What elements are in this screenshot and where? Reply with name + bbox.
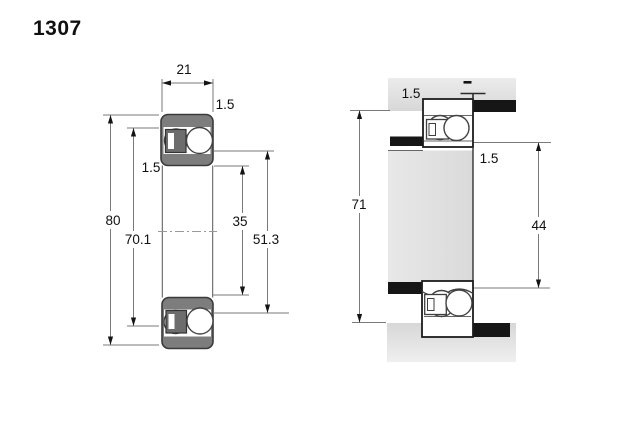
dim-raceway-diameter-70-1: 70.1 — [122, 128, 159, 326]
cage-notch — [429, 124, 436, 136]
arrowhead-down — [131, 318, 136, 327]
ball-right — [187, 128, 213, 154]
dim-outer-diameter-80: 80 — [100, 115, 159, 345]
arrowhead-up — [536, 143, 541, 152]
dim-bore-diameter-35: 35 — [213, 166, 252, 295]
housing-shoulder-bottom — [473, 323, 510, 337]
cage-notch — [169, 314, 175, 329]
housing-shoulder-top — [473, 100, 516, 112]
top-ring-section — [161, 115, 213, 166]
ball-right — [444, 116, 469, 141]
arrowhead-down — [108, 337, 113, 346]
arrowhead-down — [536, 280, 541, 289]
arrowhead-right — [204, 80, 213, 85]
arrowhead-up — [265, 151, 270, 160]
cage-notch — [428, 299, 435, 311]
dim-housing-abutment-71: 71 — [346, 111, 390, 323]
ball-right — [187, 308, 213, 334]
arrowhead-down — [240, 287, 245, 296]
raceway-diameter-label: 70.1 — [125, 232, 151, 247]
ball-right — [446, 290, 472, 316]
shaft-body — [388, 151, 473, 283]
shaft-shoulder-bottom — [388, 282, 422, 294]
bearing-top — [423, 99, 473, 147]
tick-dash — [464, 81, 472, 84]
left-view-bearing-cross-section: 21 1.5 1.5 80 70.1 — [100, 62, 289, 349]
arrowhead-up — [240, 166, 245, 175]
housing-abutment-label: 71 — [351, 197, 366, 212]
technical-drawing: 1307 — [0, 0, 640, 440]
drawing-canvas: 1307 — [0, 0, 640, 440]
shaft-fillet-label: 1.5 — [480, 151, 499, 166]
cage-notch — [168, 133, 174, 149]
arrowhead-up — [357, 111, 362, 120]
arrowhead-up — [108, 115, 113, 124]
outer-diameter-label: 80 — [105, 213, 120, 228]
housing-fillet-label: 1.5 — [402, 86, 421, 101]
dim-width-21: 21 — [162, 62, 213, 112]
width-dim-label: 21 — [176, 62, 191, 77]
shaft-abutment-label: 44 — [531, 218, 547, 233]
shaft-shoulder-top — [390, 137, 423, 147]
shoulder-diameter-label: 51.3 — [253, 232, 279, 247]
arrowhead-up — [131, 128, 136, 137]
inner-chamfer-label: 1.5 — [142, 160, 161, 175]
arrowhead-down — [265, 305, 270, 314]
dim-shoulder-diameter-51-3: 51.3 — [213, 151, 289, 313]
part-number: 1307 — [33, 17, 82, 40]
arrowhead-down — [357, 314, 362, 323]
bottom-ring-section — [162, 298, 213, 349]
outer-chamfer-label: 1.5 — [216, 97, 235, 112]
arrowhead-left — [162, 80, 171, 85]
bore-diameter-label: 35 — [232, 214, 247, 229]
right-view-mounted-arrangement: 1.5 1.5 71 44 — [346, 78, 552, 362]
bearing-bottom — [422, 281, 473, 337]
